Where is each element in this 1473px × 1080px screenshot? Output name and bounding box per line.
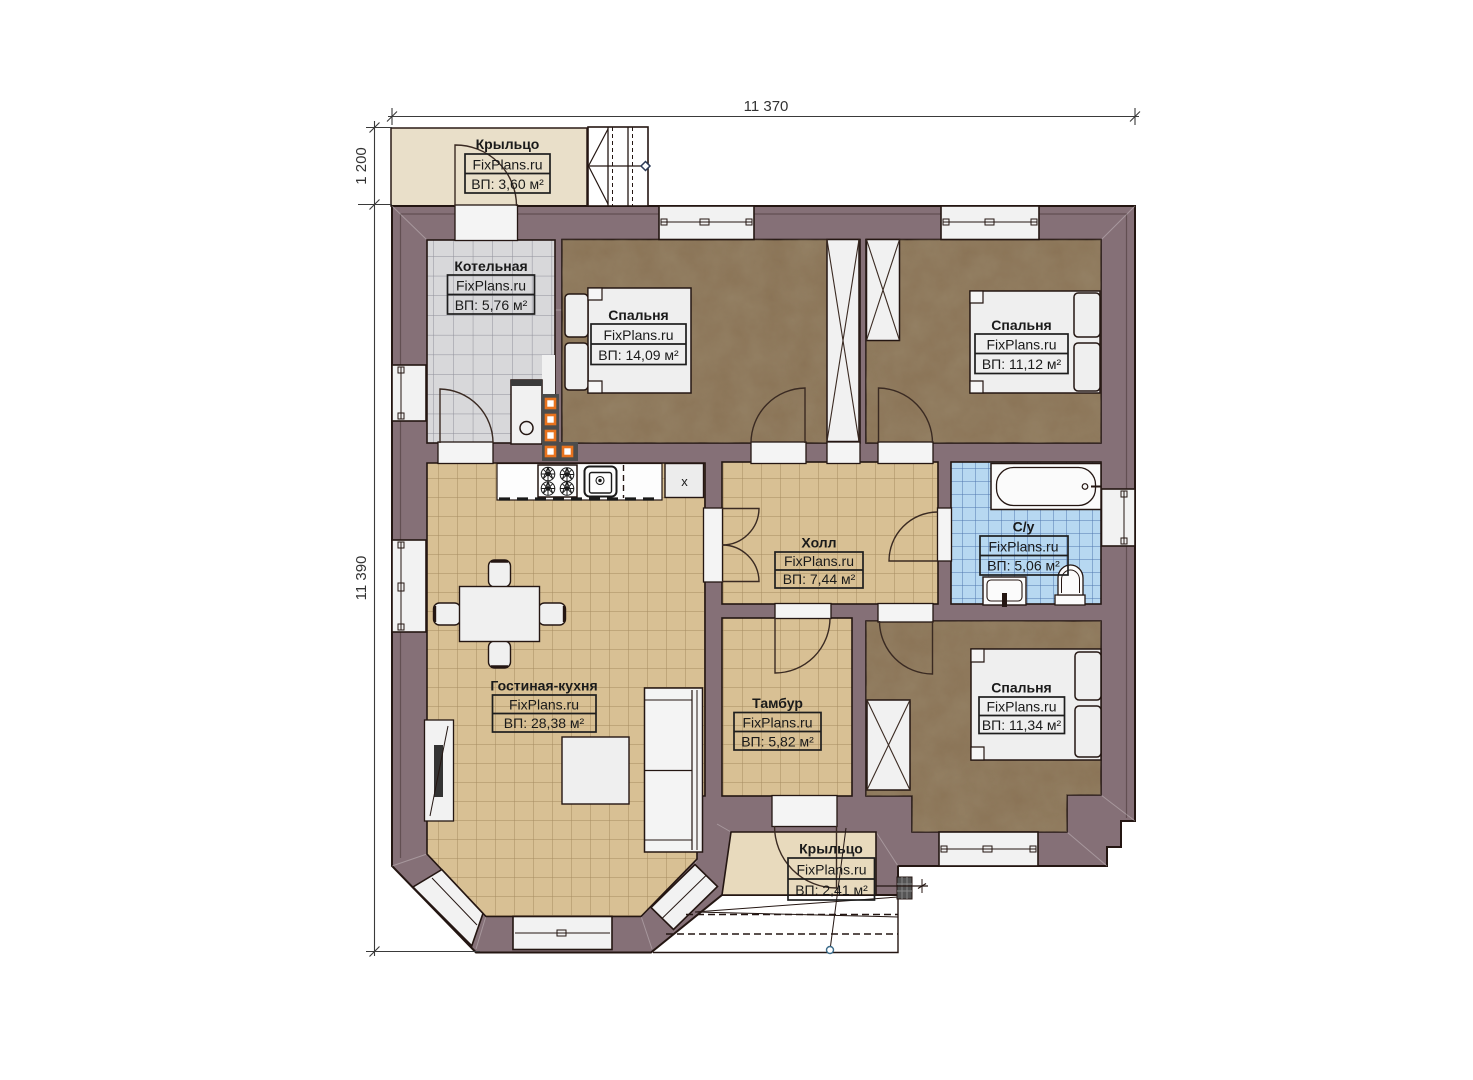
svg-text:Крыльцо: Крыльцо bbox=[476, 136, 540, 152]
svg-text:ВП: 7,44 м²: ВП: 7,44 м² bbox=[783, 571, 856, 587]
svg-text:FixPlans.ru: FixPlans.ru bbox=[988, 539, 1058, 555]
svg-text:ВП: 5,76 м²: ВП: 5,76 м² bbox=[455, 297, 528, 313]
svg-text:FixPlans.ru: FixPlans.ru bbox=[784, 553, 854, 569]
svg-text:ВП: 5,82 м²: ВП: 5,82 м² bbox=[741, 734, 814, 750]
svg-text:ВП: 11,34 м²: ВП: 11,34 м² bbox=[982, 717, 1062, 733]
svg-text:FixPlans.ru: FixPlans.ru bbox=[603, 327, 673, 343]
svg-text:Тамбур: Тамбур bbox=[752, 695, 803, 711]
svg-text:Спальня: Спальня bbox=[608, 307, 668, 323]
svg-text:FixPlans.ru: FixPlans.ru bbox=[742, 715, 812, 731]
svg-text:11 390: 11 390 bbox=[353, 556, 370, 601]
svg-text:ВП: 28,38 м²: ВП: 28,38 м² bbox=[504, 715, 585, 731]
svg-text:ВП: 5,06 м²: ВП: 5,06 м² bbox=[987, 558, 1060, 574]
svg-text:Крыльцо: Крыльцо bbox=[799, 841, 863, 857]
svg-text:Гостиная-кухня: Гостиная-кухня bbox=[490, 678, 597, 694]
svg-text:FixPlans.ru: FixPlans.ru bbox=[472, 157, 542, 173]
svg-text:Котельная: Котельная bbox=[454, 258, 527, 274]
svg-text:FixPlans.ru: FixPlans.ru bbox=[456, 278, 526, 294]
svg-text:ВП: 3,60 м²: ВП: 3,60 м² bbox=[471, 176, 544, 192]
svg-text:FixPlans.ru: FixPlans.ru bbox=[796, 862, 866, 878]
svg-text:FixPlans.ru: FixPlans.ru bbox=[986, 337, 1056, 353]
svg-text:ВП: 2,41 м²: ВП: 2,41 м² bbox=[795, 882, 868, 898]
svg-text:11 370: 11 370 bbox=[744, 98, 789, 115]
svg-text:FixPlans.ru: FixPlans.ru bbox=[986, 699, 1056, 715]
svg-text:С/у: С/у bbox=[1013, 519, 1035, 535]
svg-text:ВП: 11,12 м²: ВП: 11,12 м² bbox=[982, 356, 1062, 372]
svg-text:FixPlans.ru: FixPlans.ru bbox=[509, 697, 579, 713]
svg-text:Спальня: Спальня bbox=[991, 680, 1051, 696]
svg-text:х: х bbox=[681, 474, 688, 489]
svg-text:ВП: 14,09 м²: ВП: 14,09 м² bbox=[598, 347, 679, 363]
svg-text:Спальня: Спальня bbox=[991, 317, 1051, 333]
svg-text:Холл: Холл bbox=[801, 535, 836, 551]
svg-text:1 200: 1 200 bbox=[353, 147, 370, 185]
